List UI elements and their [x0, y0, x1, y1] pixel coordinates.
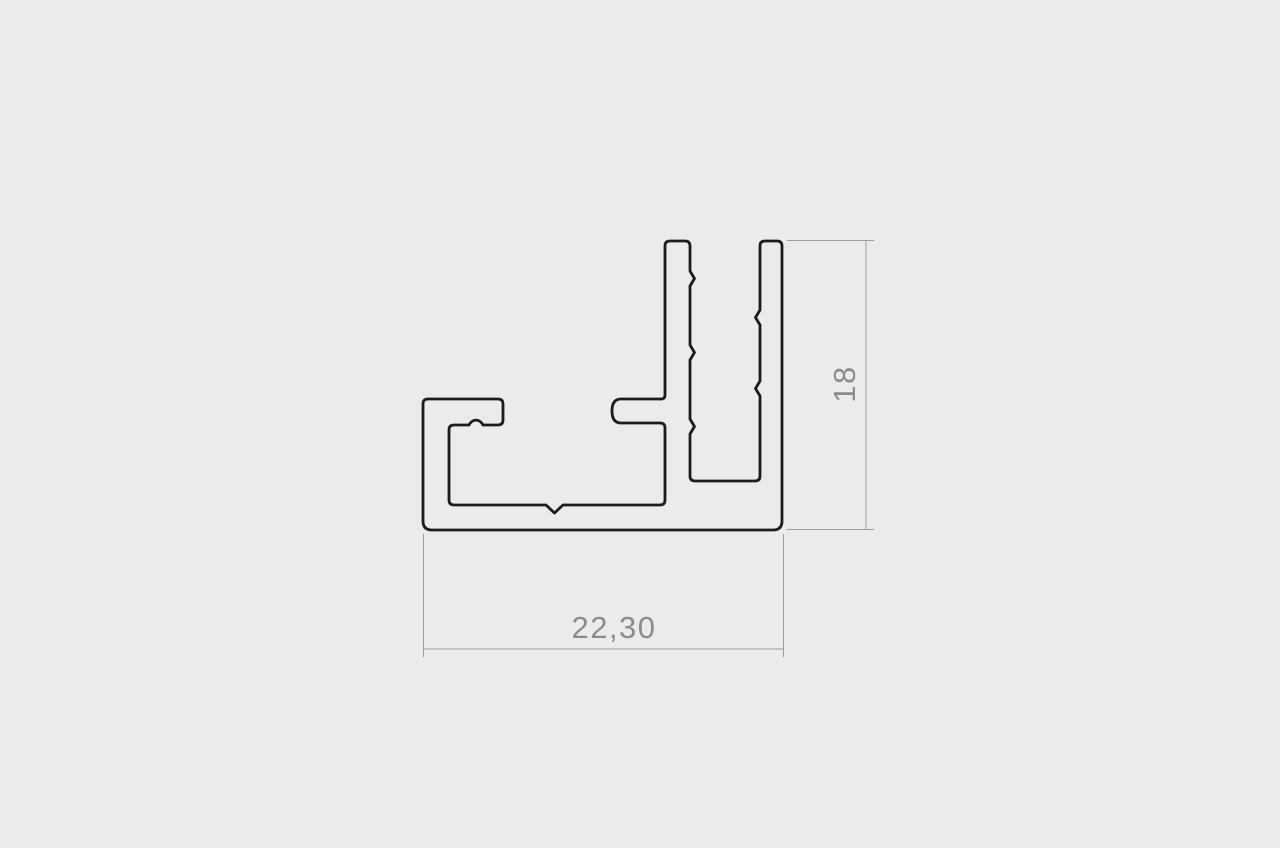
- profile-drawing: [0, 0, 1280, 848]
- profile-outline: [423, 241, 782, 530]
- drawing-canvas: 22,30 18: [0, 0, 1280, 848]
- width-dimension-label: 22,30: [571, 610, 656, 646]
- height-dimension-label: 18: [827, 365, 863, 402]
